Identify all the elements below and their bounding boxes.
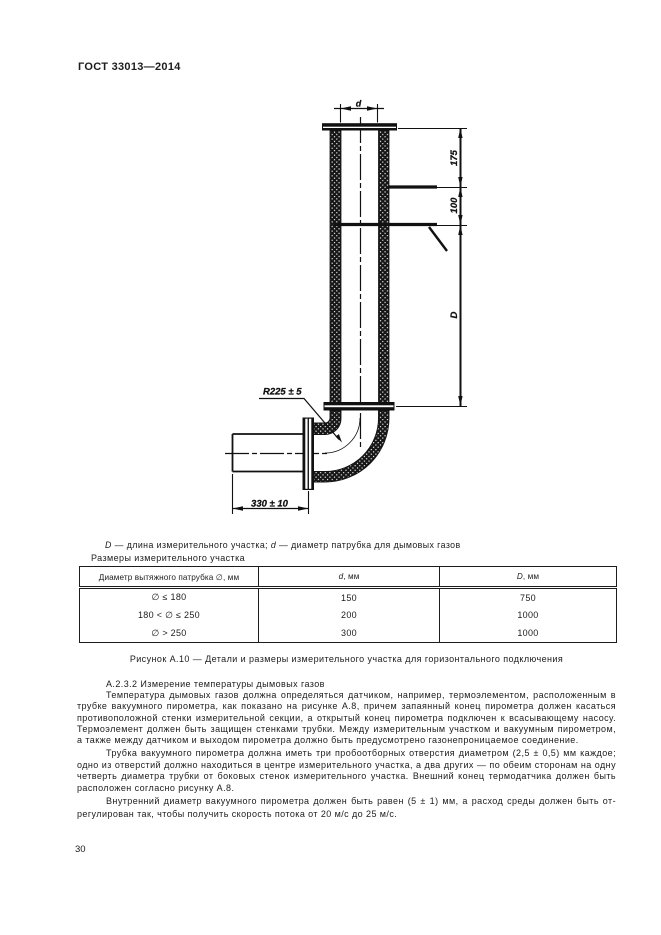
svg-text:330 ± 10: 330 ± 10 [251, 498, 289, 509]
svg-text:d: d [356, 98, 362, 108]
svg-text:R225 ± 5: R225 ± 5 [263, 387, 302, 398]
svg-text:100: 100 [449, 197, 460, 214]
svg-text:175: 175 [449, 149, 460, 166]
svg-text:D: D [449, 311, 460, 318]
